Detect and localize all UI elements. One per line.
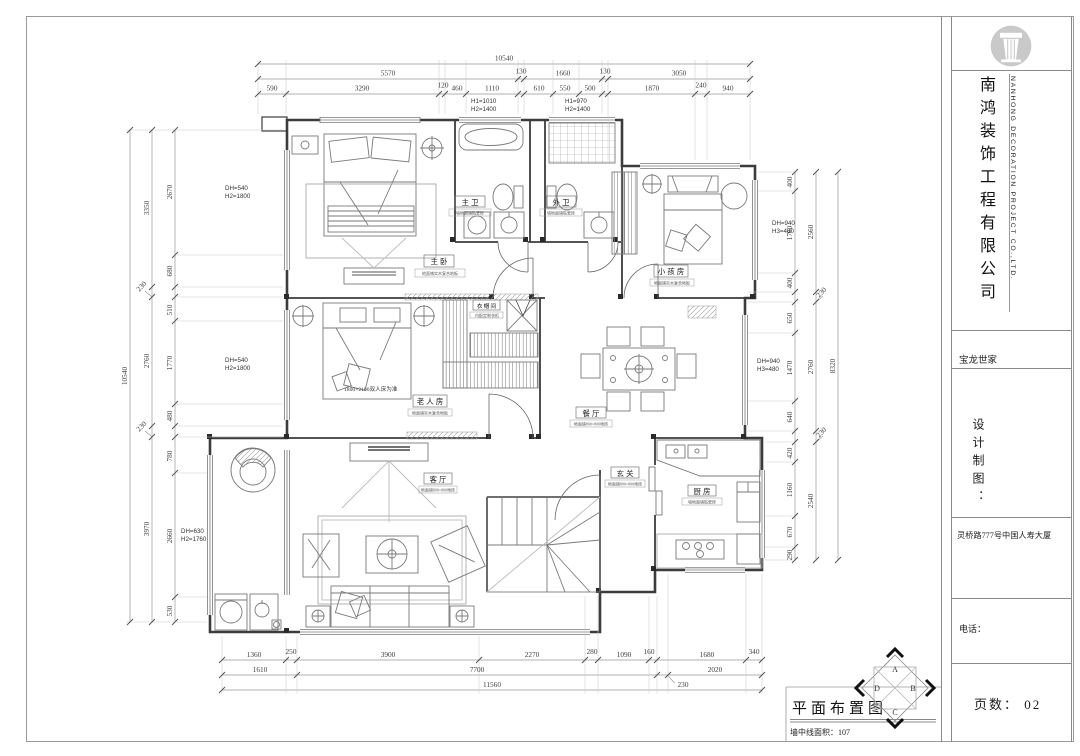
window-master-left (284, 150, 291, 270)
dim-label: 460 (452, 84, 463, 93)
elder-room-furniture (292, 303, 435, 399)
room-label-dining: 餐厅 地面铺800×800地砖 (570, 407, 612, 427)
dim-label: 400 (785, 277, 794, 288)
tb-divider (952, 368, 1071, 369)
dim-label: 290 (785, 549, 794, 560)
tb-divider (952, 598, 1071, 599)
dim-label: 230 (678, 680, 689, 689)
sink-icon (584, 212, 614, 238)
room-name: 老人房 (417, 396, 446, 406)
dim-label: 1360 (247, 650, 262, 659)
annotation: H1=1010 (471, 98, 497, 105)
dim-label: 400 (785, 176, 794, 187)
toilet-icon (493, 184, 523, 210)
title-block: 南鸿装饰工程有限公司 NANHONG DECORATION PROJECT CO… (951, 16, 1072, 742)
balcony-furniture (215, 448, 281, 630)
annotation: H3=480 (757, 366, 779, 373)
design-label: 设计制图： (970, 418, 987, 538)
tb-divider (952, 330, 1071, 331)
dim-label: 610 (534, 84, 545, 93)
room-caption: 墙地面铺贴瓷砖 (456, 210, 484, 216)
living-room-furniture (303, 443, 485, 627)
room-label-entry: 玄关 地面铺800×800地砖 (605, 467, 645, 487)
dim-label: 2540 (806, 493, 815, 508)
room-label-closet: 衣帽间 内配定制衣柜 (470, 300, 503, 318)
room-label-master-bath: 主卫 墙地面铺贴瓷砖 (449, 196, 491, 216)
annotation: H3=480 (772, 228, 794, 235)
annotation: H2=1800 (225, 193, 251, 200)
door-master-bath (498, 242, 528, 272)
door-kitchen-slider (649, 467, 662, 515)
tb-divider (952, 70, 1071, 71)
dim-label: 2670 (165, 184, 174, 199)
stove-icon (676, 540, 724, 559)
dim-label: 1660 (556, 69, 571, 78)
column-logo-icon (989, 24, 1033, 68)
annotation: DH=630 (181, 528, 204, 535)
kids-room-furniture (612, 172, 747, 264)
room-label-elder: 老人房 地面铺实木复合地板 (408, 395, 452, 416)
side-table-icon (306, 606, 330, 627)
dim-label: 11560 (483, 680, 501, 689)
title-block-divider (941, 16, 942, 742)
dim-label: 3970 (142, 521, 151, 536)
room-name: 主卫 (462, 197, 481, 207)
room-caption: 地面铺实木复合地板 (412, 410, 448, 416)
window-kids-top (640, 163, 740, 170)
dim-labels-left: 10540 3350 230 2760 230 3970 2670 680 51… (120, 184, 174, 616)
tb-divider (952, 517, 1071, 518)
room-caption: 墙地面铺贴瓷砖 (547, 210, 575, 216)
window-gbath-top (549, 117, 615, 124)
dim-label: 130 (516, 67, 527, 76)
window-mbath-top (459, 117, 521, 124)
sink-icon (494, 212, 524, 238)
dim-label: 500 (585, 84, 596, 93)
dim-label: 280 (587, 647, 598, 656)
dim-label: 1470 (785, 360, 794, 375)
dim-label: 10540 (120, 367, 129, 386)
dim-label: 1870 (645, 84, 660, 93)
phone-label: 电话： (959, 622, 986, 635)
company-address: 灵桥路777号中国人寿大厦 (957, 530, 1067, 541)
ceiling-fan-icon (642, 174, 662, 194)
dim-label: 550 (560, 84, 571, 93)
dim-label: 510 (165, 304, 174, 315)
floor-plan-svg: 10540 5570 130 1660 130 3050 590 3290 12… (0, 0, 1080, 756)
annotation: DH=540 (225, 185, 248, 192)
room-caption: 内配定制衣柜 (475, 312, 499, 318)
room-caption: 地面铺800×800地砖 (608, 481, 642, 487)
dim-label: 3290 (355, 84, 370, 93)
room-caption: 地面铺实木复合地板 (654, 280, 690, 286)
dim-label: 1610 (253, 665, 268, 674)
dim-label: 640 (785, 411, 794, 422)
annotation: H2=1760 (181, 536, 207, 543)
room-name: 外卫 (553, 197, 572, 207)
tb-divider (952, 663, 1071, 664)
area-note: 墙中线面积：107 (790, 727, 850, 737)
compass-a: A (892, 665, 898, 674)
side-table-icon (450, 606, 474, 627)
dim-label: 480 (165, 410, 174, 421)
door-kids (624, 264, 658, 298)
window-living-bottom (300, 629, 590, 636)
dim-label: 7700 (470, 665, 485, 674)
dim-labels-bottom: 1360 250 3900 2270 280 1090 160 1680 340… (247, 647, 760, 689)
dim-label: 780 (165, 450, 174, 461)
annotation: DH=540 (225, 357, 248, 364)
dim-label: 3350 (142, 200, 151, 215)
room-label-living: 客厅 地面铺800×800地砖 (419, 473, 457, 493)
dim-label: 230 (134, 419, 148, 433)
dim-label: 240 (696, 81, 707, 90)
dim-label: 2760 (142, 353, 151, 368)
dim-label: 420 (785, 447, 794, 458)
company-name-en: NANHONG DECORATION PROJECT CO.,LTD. (1009, 76, 1016, 281)
door-master (493, 258, 533, 298)
room-name: 客厅 (430, 474, 449, 484)
armchair-icon (303, 534, 339, 577)
master-bedroom-furniture (292, 134, 444, 284)
window-dining-right (742, 315, 749, 425)
washing-machine-icon (215, 594, 247, 630)
dim-label: 1770 (165, 355, 174, 370)
stairs (487, 497, 600, 592)
dim-labels-top: 10540 5570 130 1660 130 3050 590 3290 12… (267, 54, 734, 93)
room-name: 衣帽间 (477, 302, 497, 310)
room-label-kids: 小孩房 地面铺实木复合地板 (650, 265, 694, 286)
dim-label: 10540 (495, 54, 514, 63)
project-name: 宝龙世家 (959, 352, 997, 366)
window-master-top (320, 117, 420, 124)
annotation: H2=1400 (471, 106, 497, 113)
dim-label: 230 (134, 279, 148, 293)
dim-label: 250 (286, 647, 297, 656)
coffee-table-icon (366, 536, 418, 573)
annotation: H1=970 (565, 98, 587, 105)
drawing-title: 平面布置图 (792, 700, 887, 717)
master-bath-fixtures (459, 124, 524, 238)
dim-label: 2020 (708, 665, 723, 674)
dim-label: 5570 (381, 69, 396, 78)
pendant-lamp-icon (624, 354, 654, 384)
dim-label: 130 (600, 67, 611, 76)
room-caption: 地面铺800×800地砖 (574, 421, 608, 427)
compass-c: C (892, 708, 897, 717)
room-caption: 墙地面铺贴瓷砖 (688, 499, 716, 505)
room-name: 厨房 (694, 486, 713, 496)
window-elder-left (284, 310, 291, 420)
dim-label: 3050 (672, 69, 687, 78)
tv-console-master (342, 238, 406, 284)
dim-label: 1160 (785, 482, 794, 497)
dim-label: 3900 (381, 650, 396, 659)
dim-label: 2270 (525, 650, 540, 659)
armchair-icon (431, 526, 485, 582)
dim-label: 340 (749, 647, 760, 656)
room-caption: 地面铺800×800地砖 (421, 487, 455, 493)
dining-furniture (581, 327, 696, 411)
ceiling-fan-icon (420, 136, 444, 160)
dim-label: 590 (267, 84, 278, 93)
drawing-sheet: 10540 5570 130 1660 130 3050 590 3290 12… (0, 0, 1080, 756)
room-name: 主卧 (431, 256, 450, 266)
page-number: 页数： 02 (974, 694, 1041, 713)
room-label-guest-bath: 外卫 墙地面铺贴瓷砖 (540, 196, 582, 216)
room-name: 玄关 (617, 468, 636, 478)
dim-label: 160 (644, 647, 655, 656)
room-name: 小孩房 (658, 266, 687, 276)
door-elder (489, 394, 533, 438)
dim-label: 1090 (617, 650, 632, 659)
papasan-chair-icon (231, 448, 275, 492)
dim-label: 680 (165, 265, 174, 276)
ceiling-fan-icon (413, 305, 435, 327)
dim-label: 2760 (806, 359, 815, 374)
room-caption: 地面铺实木复合地板 (422, 270, 458, 276)
annotation: DH=940 (772, 220, 795, 227)
company-name-cn: 南鸿装饰工程有限公司 (973, 76, 997, 332)
room-name: 餐厅 (583, 409, 602, 418)
dim-label: 120 (438, 81, 449, 90)
tv-console-living (342, 443, 436, 522)
page-label: 页数： (974, 697, 1019, 712)
annotation: H2=1800 (225, 365, 251, 372)
ceiling-fan-icon (292, 305, 314, 327)
sofa-icon (331, 586, 449, 627)
dim-label: 670 (785, 526, 794, 537)
window-balcony-left (207, 455, 214, 615)
dim-label: 2560 (806, 224, 815, 239)
dim-label: 650 (785, 312, 794, 323)
compass-b: B (910, 684, 915, 693)
guest-bath-fixtures (547, 123, 615, 238)
window-living-balcony (284, 450, 291, 595)
dim-label: 2660 (165, 528, 174, 543)
dim-label: 1110 (485, 84, 499, 93)
room-label-kitchen: 厨房 墙地面铺贴瓷砖 (682, 485, 722, 505)
page-value: 02 (1024, 697, 1041, 712)
dim-label: 8320 (828, 358, 837, 373)
dim-label: 1680 (700, 650, 715, 659)
window-kids-right (752, 180, 759, 280)
bed-size-note: 1800×2100双人床为准 (344, 385, 398, 393)
annotation: H2=1400 (565, 106, 591, 113)
dim-label: 530 (165, 605, 174, 616)
compass-d: D (874, 684, 880, 693)
window-kitchen-bottom (685, 567, 745, 574)
company-logo (989, 24, 1033, 68)
annotation: DH=940 (757, 358, 780, 365)
dim-label: 940 (723, 84, 734, 93)
